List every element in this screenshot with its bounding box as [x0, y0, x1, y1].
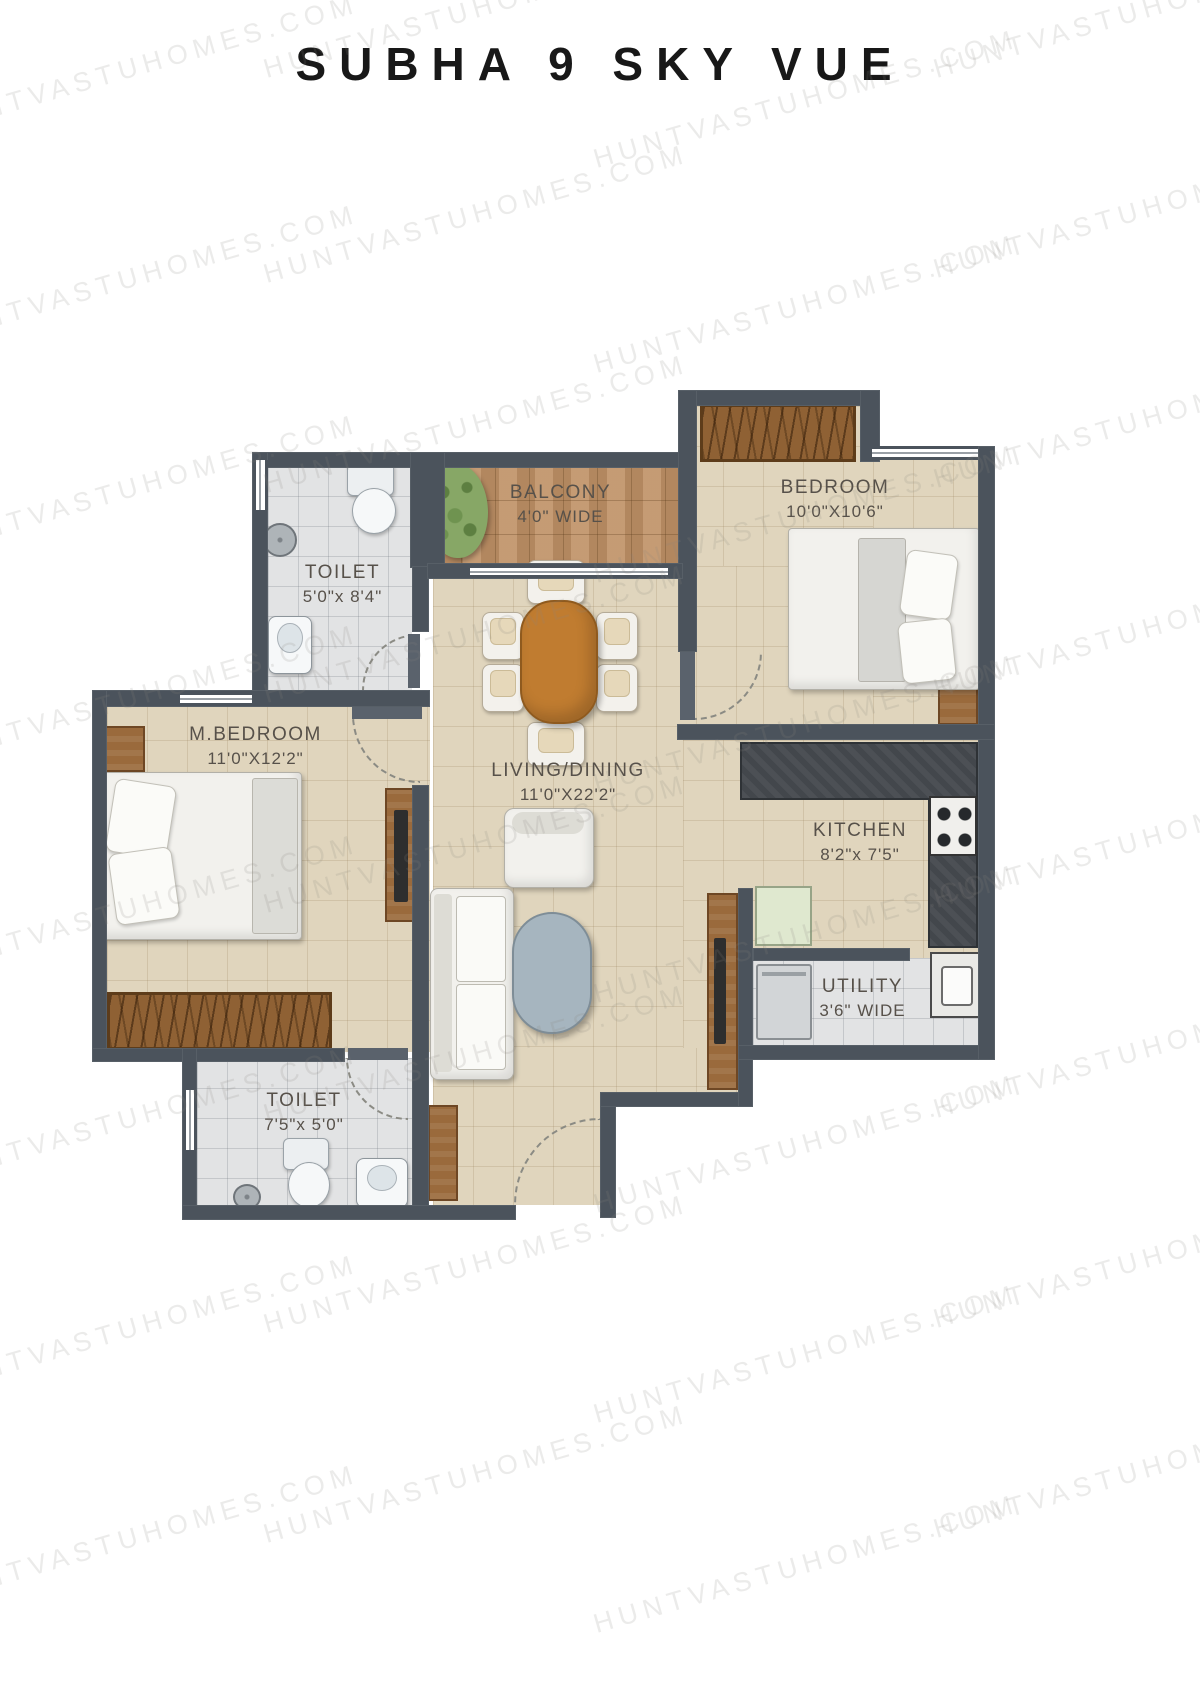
- wall-segment: [600, 1092, 753, 1107]
- door-leaf: [408, 634, 420, 688]
- sink-basin: [941, 966, 973, 1006]
- wall-segment: [410, 452, 445, 568]
- washbasin-icon: [268, 616, 312, 674]
- floor-plan: TOILET 5'0"x 8'4" BALCONY 4'0" WIDE BEDR…: [0, 0, 1200, 1697]
- kitchen-counter: [740, 742, 978, 800]
- wardrobe-icon: [700, 404, 856, 462]
- bed-blanket: [252, 778, 298, 934]
- window: [872, 446, 978, 460]
- wardrobe-icon: [107, 992, 332, 1050]
- wall-segment: [738, 888, 753, 1107]
- window: [183, 1090, 197, 1150]
- door-leaf: [348, 1048, 408, 1060]
- bed-blanket: [858, 538, 906, 682]
- wall-segment: [412, 785, 429, 1220]
- wall-segment: [600, 1092, 616, 1218]
- door-leaf: [352, 707, 422, 719]
- wall-segment: [753, 948, 910, 961]
- shoe-cabinet-icon: [428, 1105, 458, 1201]
- wall-segment: [978, 446, 995, 1060]
- wall-segment: [92, 1048, 345, 1062]
- washing-machine-lid: [762, 972, 806, 976]
- dining-chair-icon: [596, 612, 638, 660]
- stove-icon: [929, 796, 977, 856]
- pillow-icon: [107, 846, 180, 926]
- toilet-wc-icon: [352, 488, 396, 534]
- washbasin-icon: [356, 1158, 408, 1208]
- dining-chair-icon: [596, 664, 638, 712]
- sofa-backrest: [434, 894, 452, 1072]
- wall-segment: [678, 390, 697, 652]
- window: [253, 460, 268, 510]
- coffee-table-icon: [512, 912, 592, 1034]
- wall-segment: [678, 390, 870, 406]
- dining-chair-icon: [482, 664, 524, 712]
- dining-table-icon: [520, 600, 598, 724]
- fridge-icon: [755, 886, 812, 946]
- sofa-cushion: [456, 896, 506, 982]
- dining-chair-icon: [527, 722, 585, 766]
- bedside-table-icon: [105, 726, 145, 772]
- window: [180, 692, 252, 706]
- wall-segment: [92, 690, 430, 707]
- armchair-backrest: [512, 812, 584, 834]
- sliding-window: [470, 565, 668, 578]
- pillow-icon: [899, 549, 960, 622]
- tv-icon: [714, 938, 726, 1044]
- pillow-icon: [897, 617, 957, 684]
- shower-drain-icon: [263, 523, 297, 557]
- tv-icon: [394, 810, 408, 902]
- wall-segment: [677, 724, 995, 740]
- wall-segment: [738, 1045, 995, 1060]
- toilet-wc-icon: [288, 1162, 330, 1208]
- wall-segment: [92, 690, 107, 1062]
- utility-sink-icon: [930, 952, 980, 1018]
- wall-segment: [252, 452, 683, 468]
- door-leaf: [680, 652, 695, 720]
- sofa-cushion: [456, 984, 506, 1070]
- wall-segment: [182, 1205, 516, 1220]
- dining-chair-icon: [482, 612, 524, 660]
